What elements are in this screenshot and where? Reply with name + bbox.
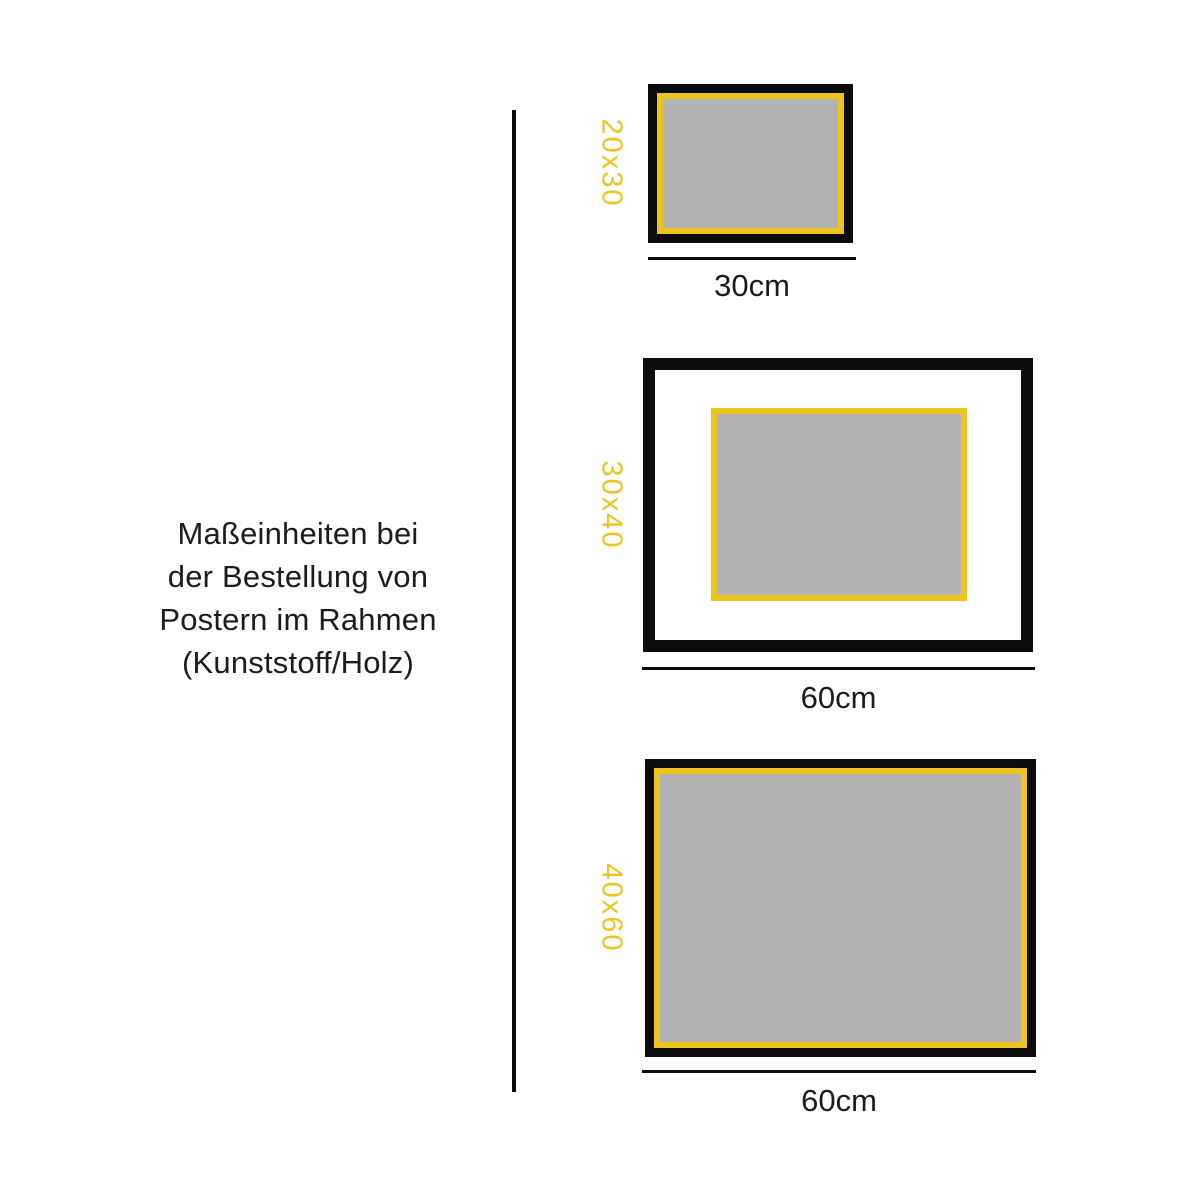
size-label-20x30: 20x30 <box>595 118 628 207</box>
description-text: Maßeinheiten bei der Bestellung von Post… <box>108 512 488 684</box>
size-label-40x60: 40x60 <box>595 863 628 952</box>
poster-30x40 <box>711 408 967 601</box>
frame-40x60 <box>645 759 1036 1057</box>
frame-20x30 <box>648 84 853 243</box>
description-line-1: Maßeinheiten bei <box>108 512 488 555</box>
description-line-4: (Kunststoff/Holz) <box>108 641 488 684</box>
description-line-3: Postern im Rahmen <box>108 598 488 641</box>
width-label-20x30: 30cm <box>648 268 856 304</box>
diagram-canvas: Maßeinheiten bei der Bestellung von Post… <box>0 0 1200 1200</box>
poster-20x30 <box>663 99 838 228</box>
frame-30x40 <box>643 358 1033 652</box>
size-label-30x40: 30x40 <box>595 460 628 549</box>
width-label-30x40: 60cm <box>642 680 1035 716</box>
vertical-divider-line <box>512 110 516 1092</box>
width-line-40x60 <box>642 1070 1036 1073</box>
width-line-20x30 <box>648 257 856 260</box>
width-label-40x60: 60cm <box>642 1083 1036 1119</box>
description-line-2: der Bestellung von <box>108 555 488 598</box>
poster-40x60 <box>660 774 1021 1042</box>
width-line-30x40 <box>642 667 1035 670</box>
